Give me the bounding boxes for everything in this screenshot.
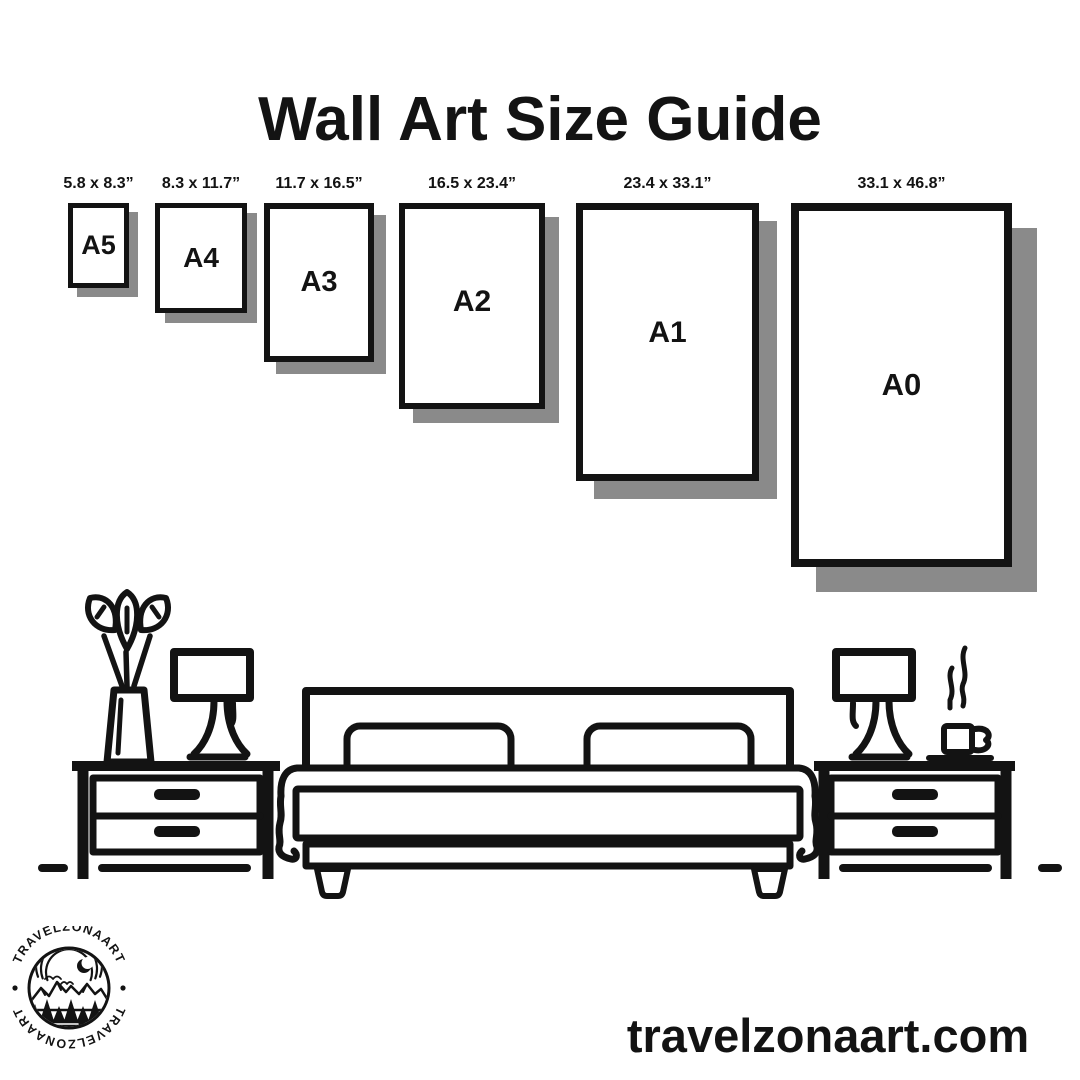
plant-vase-icon — [88, 592, 168, 762]
cup-handle — [975, 729, 989, 751]
bed-icon — [279, 691, 817, 896]
website-url: travelzonaart.com — [627, 1008, 1029, 1063]
steam-icon — [962, 648, 965, 706]
bed-leg-left — [317, 869, 348, 896]
nightstand-left-icon — [72, 766, 280, 879]
bedroom-illustration — [0, 0, 1080, 1080]
bird-icon — [61, 982, 73, 984]
size-guide-infographic: Wall Art Size Guide 5.8 x 8.3” A5 8.3 x … — [0, 0, 1080, 1080]
table-lamp-right-icon — [836, 652, 912, 757]
steam-icon — [950, 668, 952, 708]
bed-base — [306, 844, 790, 866]
logo-dot-left — [12, 985, 17, 990]
logo-text-top: TRAVELZONAART — [10, 926, 128, 966]
logo-dot-right — [120, 985, 125, 990]
logo-badge: TRAVELZONAART TRAVELZONAART — [8, 926, 130, 1050]
coffee-cup-icon — [929, 648, 991, 758]
table-lamp-left-icon — [174, 652, 250, 757]
bed-leg-right — [754, 869, 785, 896]
nightstand-right-icon — [814, 766, 1015, 879]
duvet-front — [296, 789, 800, 838]
